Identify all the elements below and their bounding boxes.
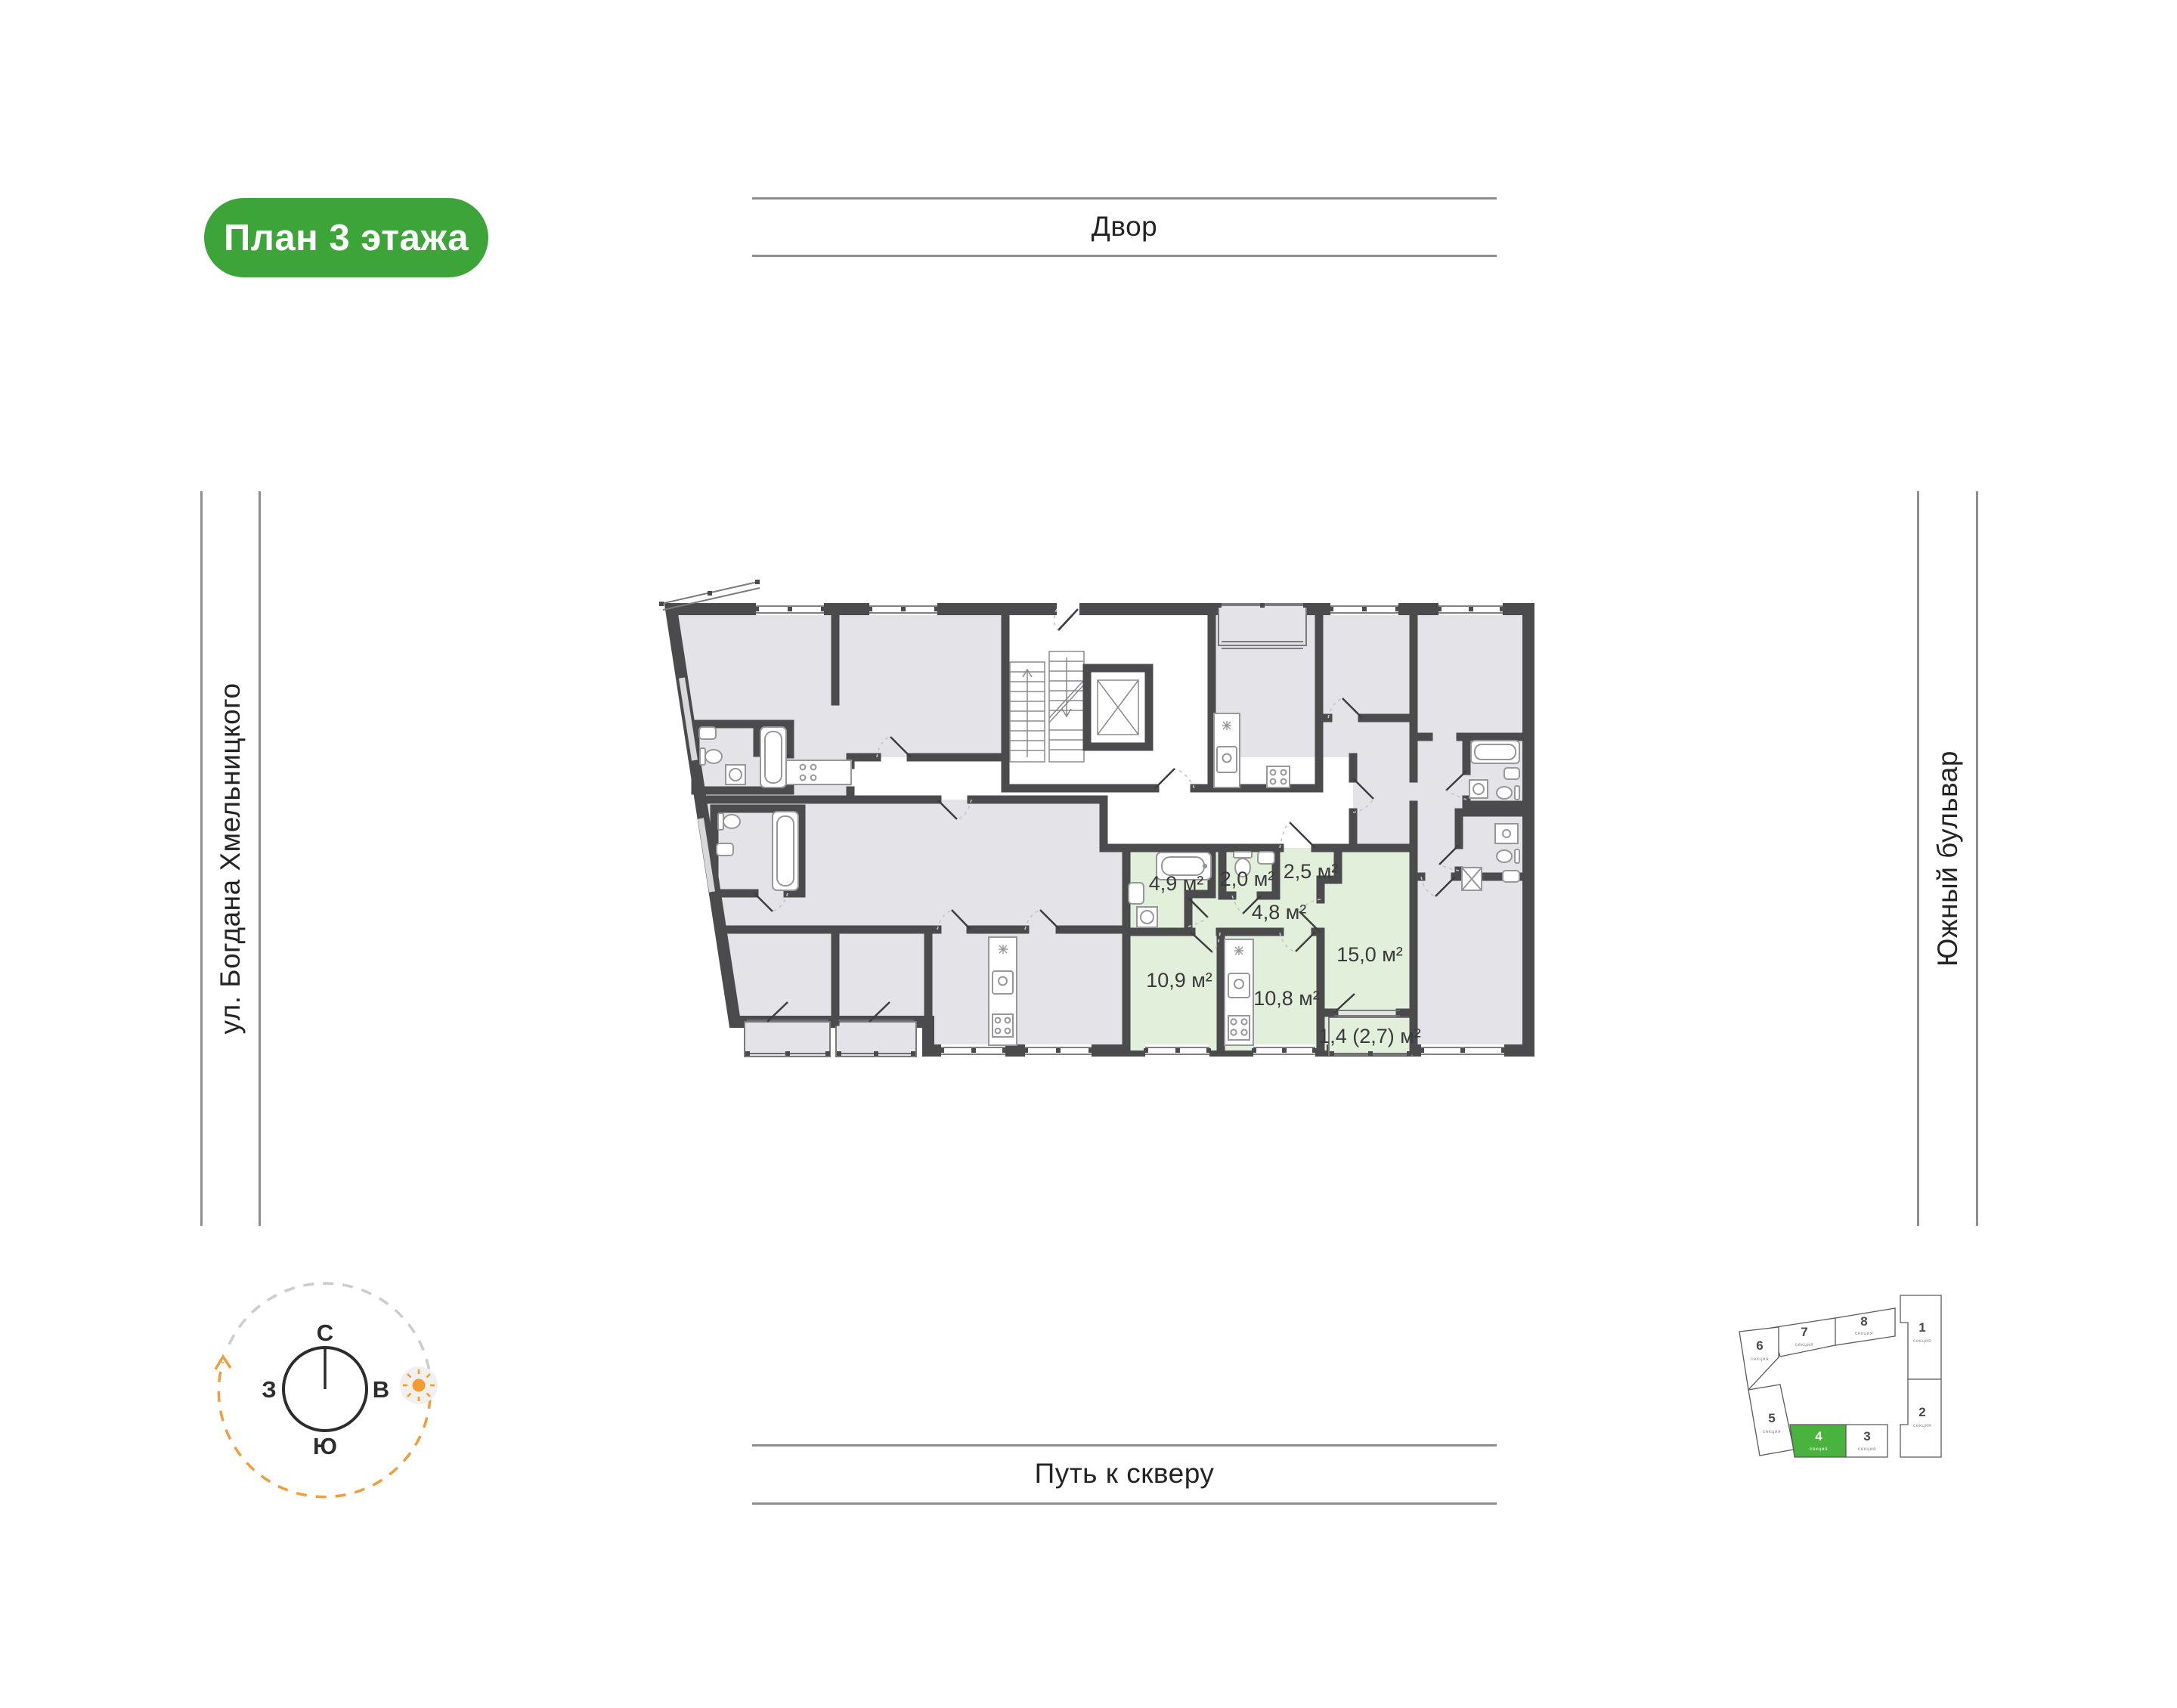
sun-path-arrow-icon <box>215 1357 231 1369</box>
room-label-balcony: 1,4 (2,7) м² <box>1318 1025 1421 1047</box>
bottom-street-label: Путь к скверу <box>752 1450 1497 1498</box>
compass-east: В <box>373 1376 389 1403</box>
minimap-section-2[interactable]: 2 секция <box>1900 1379 1941 1457</box>
section-label: секция <box>1751 1357 1769 1362</box>
section-label: секция <box>1858 1447 1876 1452</box>
top-street-label: Двор <box>752 203 1497 251</box>
compass-north: С <box>317 1320 333 1346</box>
room-label-bedroom: 10,9 м² <box>1146 969 1212 992</box>
section-number: 8 <box>1860 1314 1867 1329</box>
floor-plan-drawing: 4,9 м² 2,0 м² 2,5 м² 4,8 м² 15,0 м² 10,9… <box>646 567 1568 1081</box>
top-street-line-upper <box>752 197 1497 200</box>
section-number: 1 <box>1918 1320 1925 1335</box>
top-balcony <box>1217 603 1308 645</box>
left-street-line-inner <box>259 491 261 1226</box>
left-street-label: ул. Богдана Хмельницкого <box>215 682 246 1034</box>
section-label: секция <box>1795 1342 1813 1348</box>
section-label: секция <box>1913 1423 1931 1428</box>
section-label: секция <box>1810 1447 1828 1452</box>
entrance-door-gap <box>1057 603 1079 615</box>
section-label: секция <box>1763 1429 1781 1434</box>
section-number: 3 <box>1863 1429 1870 1443</box>
elevator <box>1087 668 1149 747</box>
room-label-kitchen: 10,8 м² <box>1253 987 1320 1010</box>
section-number: 5 <box>1768 1411 1775 1425</box>
compass-south: Ю <box>313 1433 337 1459</box>
floor-plan-badge: План 3 этажа <box>204 198 488 277</box>
right-street-line-inner <box>1917 491 1919 1226</box>
kitchen-unit <box>1225 939 1253 1045</box>
section-number: 7 <box>1801 1325 1807 1339</box>
sink-icon <box>1129 883 1144 904</box>
bottom-street-line-upper <box>752 1444 1497 1447</box>
room-label-hallway: 4,8 м² <box>1252 901 1307 924</box>
room-label-wardrobe: 2,5 м² <box>1284 860 1339 883</box>
section-number: 6 <box>1756 1338 1763 1353</box>
section-number: 2 <box>1918 1405 1925 1419</box>
minimap-section-7[interactable]: 7 секция <box>1771 1318 1835 1357</box>
right-street-line-outer <box>1976 491 1978 1226</box>
minimap-section-1[interactable]: 1 секция <box>1900 1295 1941 1379</box>
minimap-section-6[interactable]: 6 секция <box>1739 1327 1779 1390</box>
section-label: секция <box>1855 1331 1873 1336</box>
sections-minimap: 1 секция 2 секция 8 секция 7 секция 6 се… <box>1723 1285 1965 1466</box>
wc-sink-icon <box>1258 852 1274 864</box>
section-label: секция <box>1913 1338 1931 1344</box>
bottom-street-line-lower <box>752 1502 1497 1505</box>
compass: С В Ю З <box>204 1268 454 1518</box>
left-street-line-outer <box>200 491 203 1226</box>
minimap-section-5[interactable]: 5 секция <box>1748 1385 1794 1456</box>
room-label-bathroom: 4,9 м² <box>1149 872 1204 895</box>
top-street-line-lower <box>752 255 1497 257</box>
right-street-label: Южный бульвар <box>1932 750 1964 967</box>
minimap-section-4-highlighted[interactable]: 4 секция <box>1790 1425 1846 1457</box>
room-label-wc: 2,0 м² <box>1220 868 1275 890</box>
sun-icon <box>400 1366 438 1404</box>
floor-plan-page: { "badge": { "label": "План 3 этажа" }, … <box>0 0 2177 1708</box>
compass-west: З <box>262 1376 276 1403</box>
section-number: 4 <box>1815 1429 1822 1443</box>
minimap-section-3[interactable]: 3 секция <box>1846 1425 1887 1457</box>
fridge-icon <box>1234 946 1243 955</box>
room-label-living-room: 15,0 м² <box>1336 943 1403 966</box>
minimap-section-8[interactable]: 8 секция <box>1831 1308 1895 1345</box>
